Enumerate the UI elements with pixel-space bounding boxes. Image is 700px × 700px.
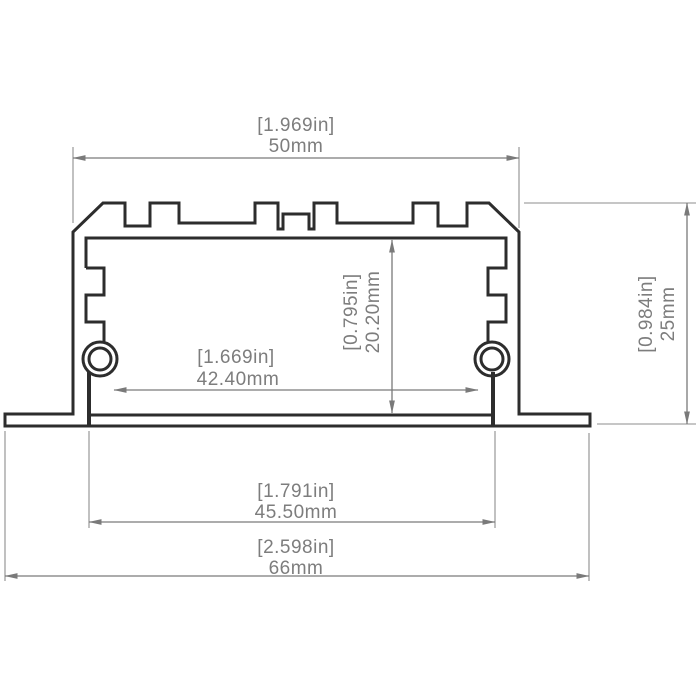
label-inner-width-mm: 42.40mm <box>197 369 280 390</box>
label-flange-width-inches: [2.598in] <box>257 537 334 558</box>
dimension-overall-width: [1.969in] 50mm <box>73 115 519 228</box>
label-recess-width-inches: [1.791in] <box>257 481 334 502</box>
profile-body <box>5 203 590 427</box>
label-overall-width-inches: [1.969in] <box>257 115 334 136</box>
drawing-canvas: [1.969in] 50mm [0.984in] 25mm [0.795in] … <box>0 0 700 700</box>
label-overall-height-inches: [0.984in] <box>636 275 657 352</box>
dimension-recess-width: [1.791in] 45.50mm <box>89 431 495 528</box>
label-inner-width-inches: [1.669in] <box>197 347 274 368</box>
label-inner-depth-mm: 20.20mm <box>363 271 384 354</box>
left-screw-hole <box>89 348 111 370</box>
label-recess-width-mm: 45.50mm <box>255 502 338 523</box>
profile-outer-contour <box>5 203 590 426</box>
label-flange-width-mm: 66mm <box>269 558 324 579</box>
label-overall-width-mm: 50mm <box>269 136 324 157</box>
profile-cross-section-drawing: [1.969in] 50mm [0.984in] 25mm [0.795in] … <box>0 0 700 700</box>
label-overall-height-mm: 25mm <box>658 287 679 342</box>
right-screw-hole <box>481 348 503 370</box>
label-inner-depth-inches: [0.795in] <box>341 273 362 350</box>
dimension-overall-height: [0.984in] 25mm <box>524 203 696 424</box>
